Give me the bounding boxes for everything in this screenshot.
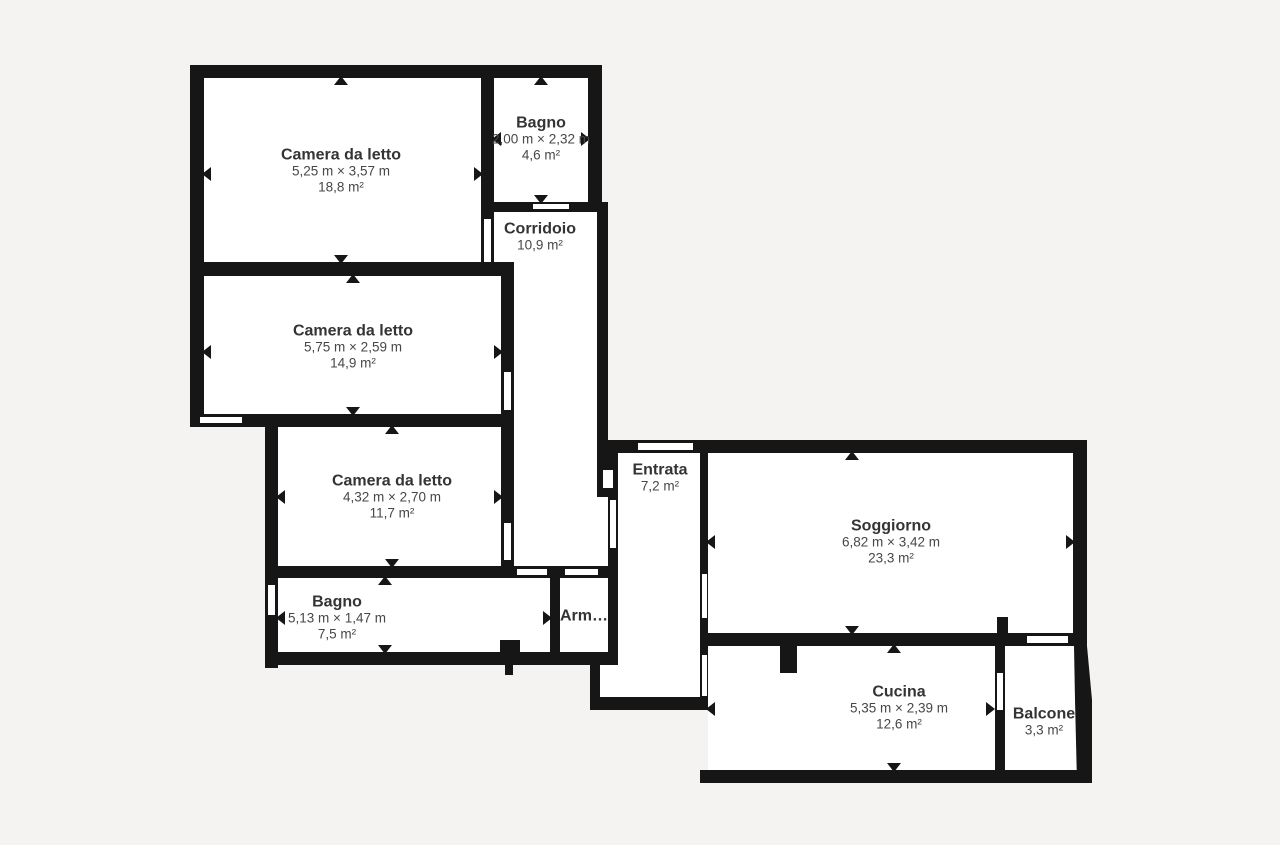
door-bagno-top-corridoio xyxy=(533,204,569,209)
wall-left-lower xyxy=(190,276,204,427)
door-camera3-corridoio xyxy=(504,523,511,560)
room-floor-soggiorno xyxy=(708,453,1073,633)
floorplan-drawing xyxy=(0,0,1280,845)
wall-soggiorno-right xyxy=(1073,440,1087,646)
wall-left-upper xyxy=(190,65,204,276)
wall-camera1-camera2 xyxy=(190,262,514,276)
room-floor-corridoio-main xyxy=(514,212,597,566)
room-floor-entrata-lower xyxy=(600,665,700,697)
door-camera2-corridoio xyxy=(504,372,511,410)
room-floor-corridoio-lower xyxy=(597,497,608,566)
front-door-entrata xyxy=(638,443,693,450)
door-corridoio-entrata xyxy=(603,470,613,488)
door-corridoio-bagno-bottom xyxy=(517,569,547,575)
wall-camera3-left xyxy=(265,427,278,578)
wall-stub-bagno-bottom xyxy=(500,640,520,652)
door-corridoio-armadio xyxy=(565,569,598,575)
door-cucina-balcone xyxy=(997,673,1003,710)
room-floor-camera1 xyxy=(204,78,481,262)
door-soggiorno-balcone xyxy=(1027,636,1068,643)
floorplan-page: Camera da letto 5,25 m × 3,57 m 18,8 m² … xyxy=(0,0,1280,845)
wall-bottom-right-block xyxy=(700,770,1092,783)
room-floor-armadio xyxy=(560,578,608,652)
wall-balcone-right-slanted xyxy=(1074,646,1092,783)
wall-stub-soggiorno xyxy=(997,617,1008,633)
room-floor-bagno-top xyxy=(494,78,588,202)
wall-entrata-bottom xyxy=(590,697,708,710)
room-floor-balcone xyxy=(1005,646,1078,770)
opening-entrata-soggiorno xyxy=(702,574,707,618)
wall-stub-cucina xyxy=(780,646,797,673)
wall-top-left-block xyxy=(190,65,602,78)
wall-bagno-bottom-bottom xyxy=(265,652,618,665)
window-bagno-bottom xyxy=(268,585,275,615)
door-camera1-corridoio xyxy=(484,219,491,262)
room-floor-cucina xyxy=(708,646,995,770)
opening-entrata-left xyxy=(610,500,616,548)
opening-entrata-cucina xyxy=(702,655,707,696)
wall-corridoio-right xyxy=(597,202,608,497)
room-floor-camera2 xyxy=(204,276,501,414)
wall-stem-bagno-bottom xyxy=(505,665,513,675)
window-camera2 xyxy=(200,417,242,423)
wall-bagno-top-right xyxy=(588,65,602,212)
wall-bagno-armadio-divider xyxy=(550,566,560,665)
room-floor-entrata-upper xyxy=(618,453,700,665)
room-floor-camera3 xyxy=(278,427,501,566)
